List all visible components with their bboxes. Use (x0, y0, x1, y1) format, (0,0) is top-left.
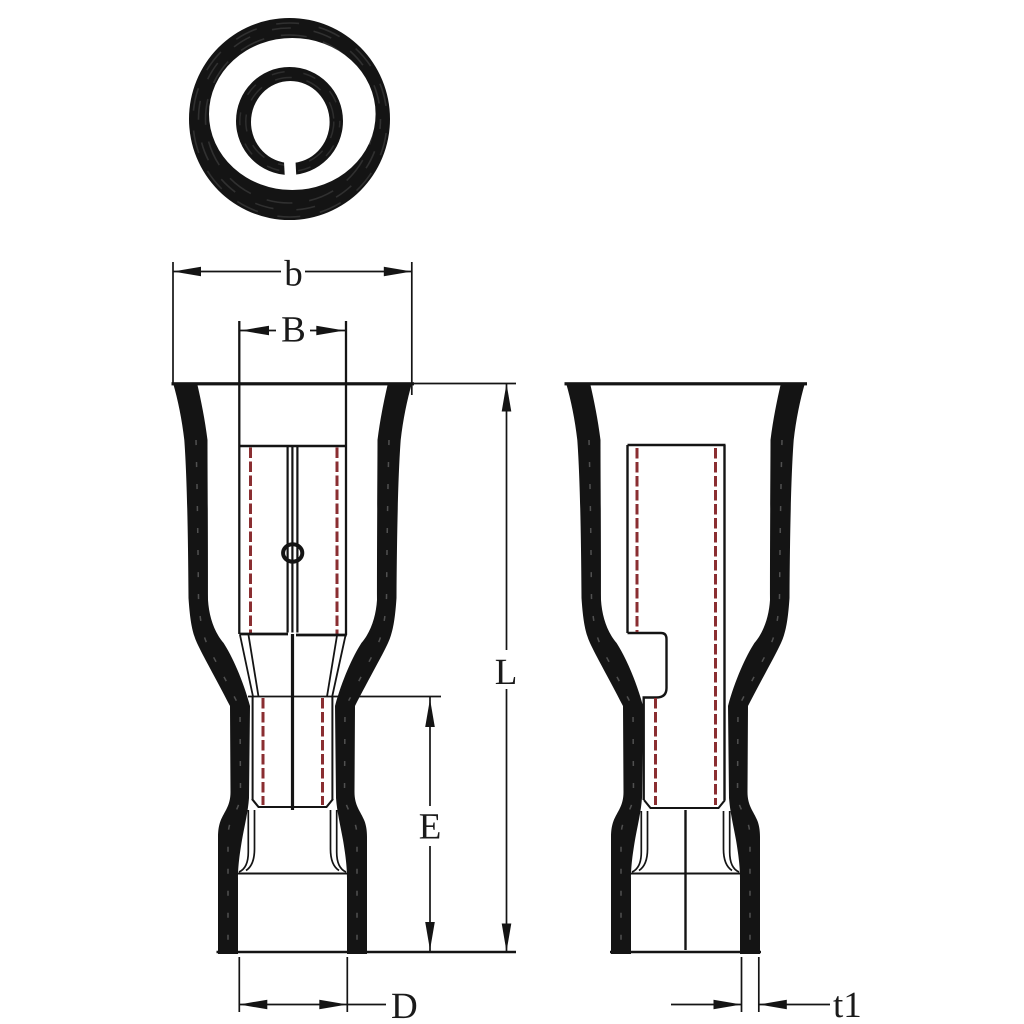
svg-text:B: B (281, 310, 306, 351)
svg-text:b: b (284, 254, 303, 295)
svg-text:D: D (391, 986, 418, 1024)
svg-text:E: E (419, 807, 442, 848)
svg-text:t1: t1 (833, 985, 862, 1024)
svg-text:L: L (495, 652, 518, 693)
